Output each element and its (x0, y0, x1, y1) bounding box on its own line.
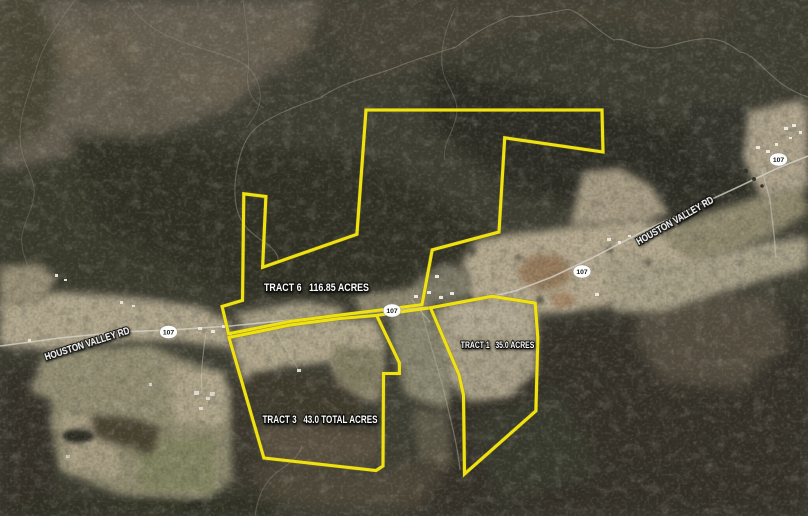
svg-text:TRACT 6 116.85 ACRES: TRACT 6 116.85 ACRES (264, 282, 369, 294)
svg-text:TRACT 3 43.0 TOTAL ACRES: TRACT 3 43.0 TOTAL ACRES (263, 414, 378, 426)
svg-text:107: 107 (386, 308, 398, 315)
svg-text:107: 107 (773, 157, 785, 164)
svg-text:TRACT 1 35.0 ACRES: TRACT 1 35.0 ACRES (461, 340, 535, 350)
svg-text:107: 107 (576, 269, 588, 276)
svg-text:107: 107 (163, 329, 175, 336)
